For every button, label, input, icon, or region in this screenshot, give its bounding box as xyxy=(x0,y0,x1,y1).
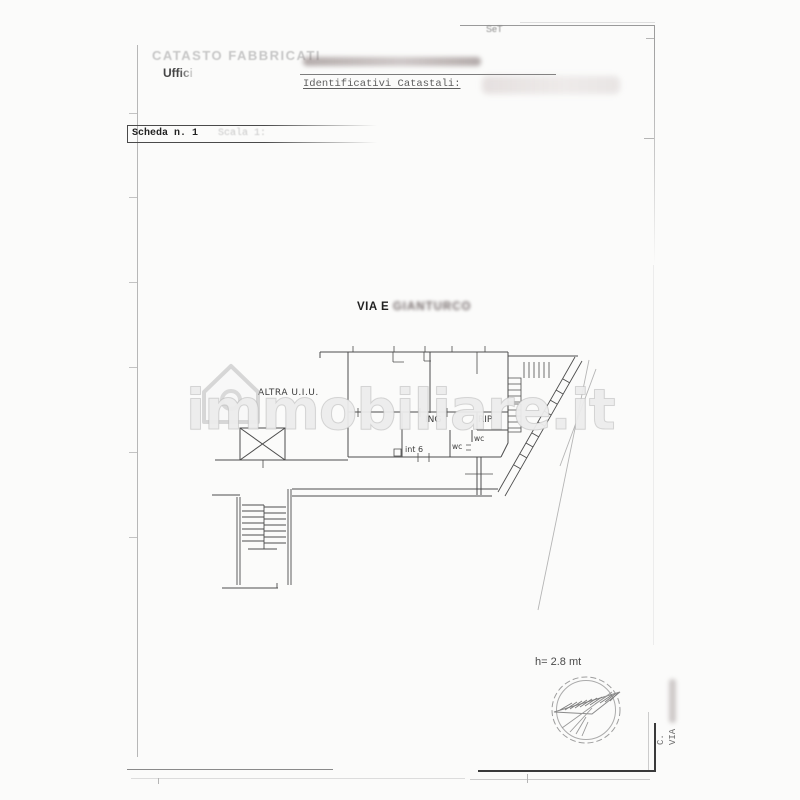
redacted-text-blur xyxy=(482,76,620,94)
scheda-number-label: Scheda n. 1 xyxy=(132,128,198,139)
scheda-box-border xyxy=(127,142,377,143)
label-wc-left: wc xyxy=(452,442,462,451)
ceiling-height-note: h= 2.8 mt xyxy=(535,656,581,668)
ruler-tick xyxy=(129,537,137,538)
ruler-tick xyxy=(129,282,137,283)
page-border-bottom-left-echo xyxy=(131,778,465,779)
side-text-line2: VIA xyxy=(667,605,679,745)
street-label: VIA E GIANTURCO xyxy=(357,301,471,313)
scheda-box-border xyxy=(127,125,377,126)
label-unit-number: int 6 xyxy=(405,445,423,454)
plan-corridor xyxy=(212,489,498,496)
corner-note: SeT xyxy=(486,24,503,34)
ruler-tick xyxy=(158,778,159,784)
redacted-street-name: GIANTURCO xyxy=(393,301,472,313)
page-border-left xyxy=(137,45,138,757)
watermark-text: immobiliare.it xyxy=(186,378,615,443)
registry-title: CATASTO FABBRICATI xyxy=(152,48,321,63)
cadastral-identifiers-label: Identificativi Catastali: xyxy=(303,78,461,90)
page-border-right-bottom-echo xyxy=(648,712,649,770)
page-border-bottom-right-echo xyxy=(470,779,650,780)
page-border-bottom-left xyxy=(127,769,333,770)
side-vertical-text: C. VIA xyxy=(655,605,681,745)
plan-hatch-railing xyxy=(524,362,549,378)
ruler-tick xyxy=(129,452,137,453)
scheda-box-border xyxy=(127,125,128,143)
side-text-line1: C. xyxy=(655,605,667,745)
office-label: Uffici xyxy=(163,66,193,80)
page-border-bottom-right xyxy=(478,770,656,772)
header-divider-line xyxy=(300,74,556,75)
ruler-tick xyxy=(644,138,654,139)
surveyor-stamp xyxy=(546,670,626,750)
ruler-tick xyxy=(129,367,137,368)
plan-stairs-lower xyxy=(222,489,291,588)
scale-label: Scala 1: xyxy=(218,128,266,139)
ruler-tick xyxy=(646,38,654,39)
cadastral-plan-sheet: CATASTO FABBRICATI Uffici SeT Identifica… xyxy=(0,0,800,800)
ruler-tick xyxy=(129,197,137,198)
page-border-right xyxy=(654,25,655,265)
street-prefix: VIA E xyxy=(357,301,389,313)
page-border-top-echo xyxy=(520,22,655,23)
redacted-text-blur xyxy=(303,57,481,66)
redacted-text-blur xyxy=(669,679,676,723)
ruler-tick xyxy=(129,113,137,114)
ruler-tick xyxy=(527,774,528,783)
